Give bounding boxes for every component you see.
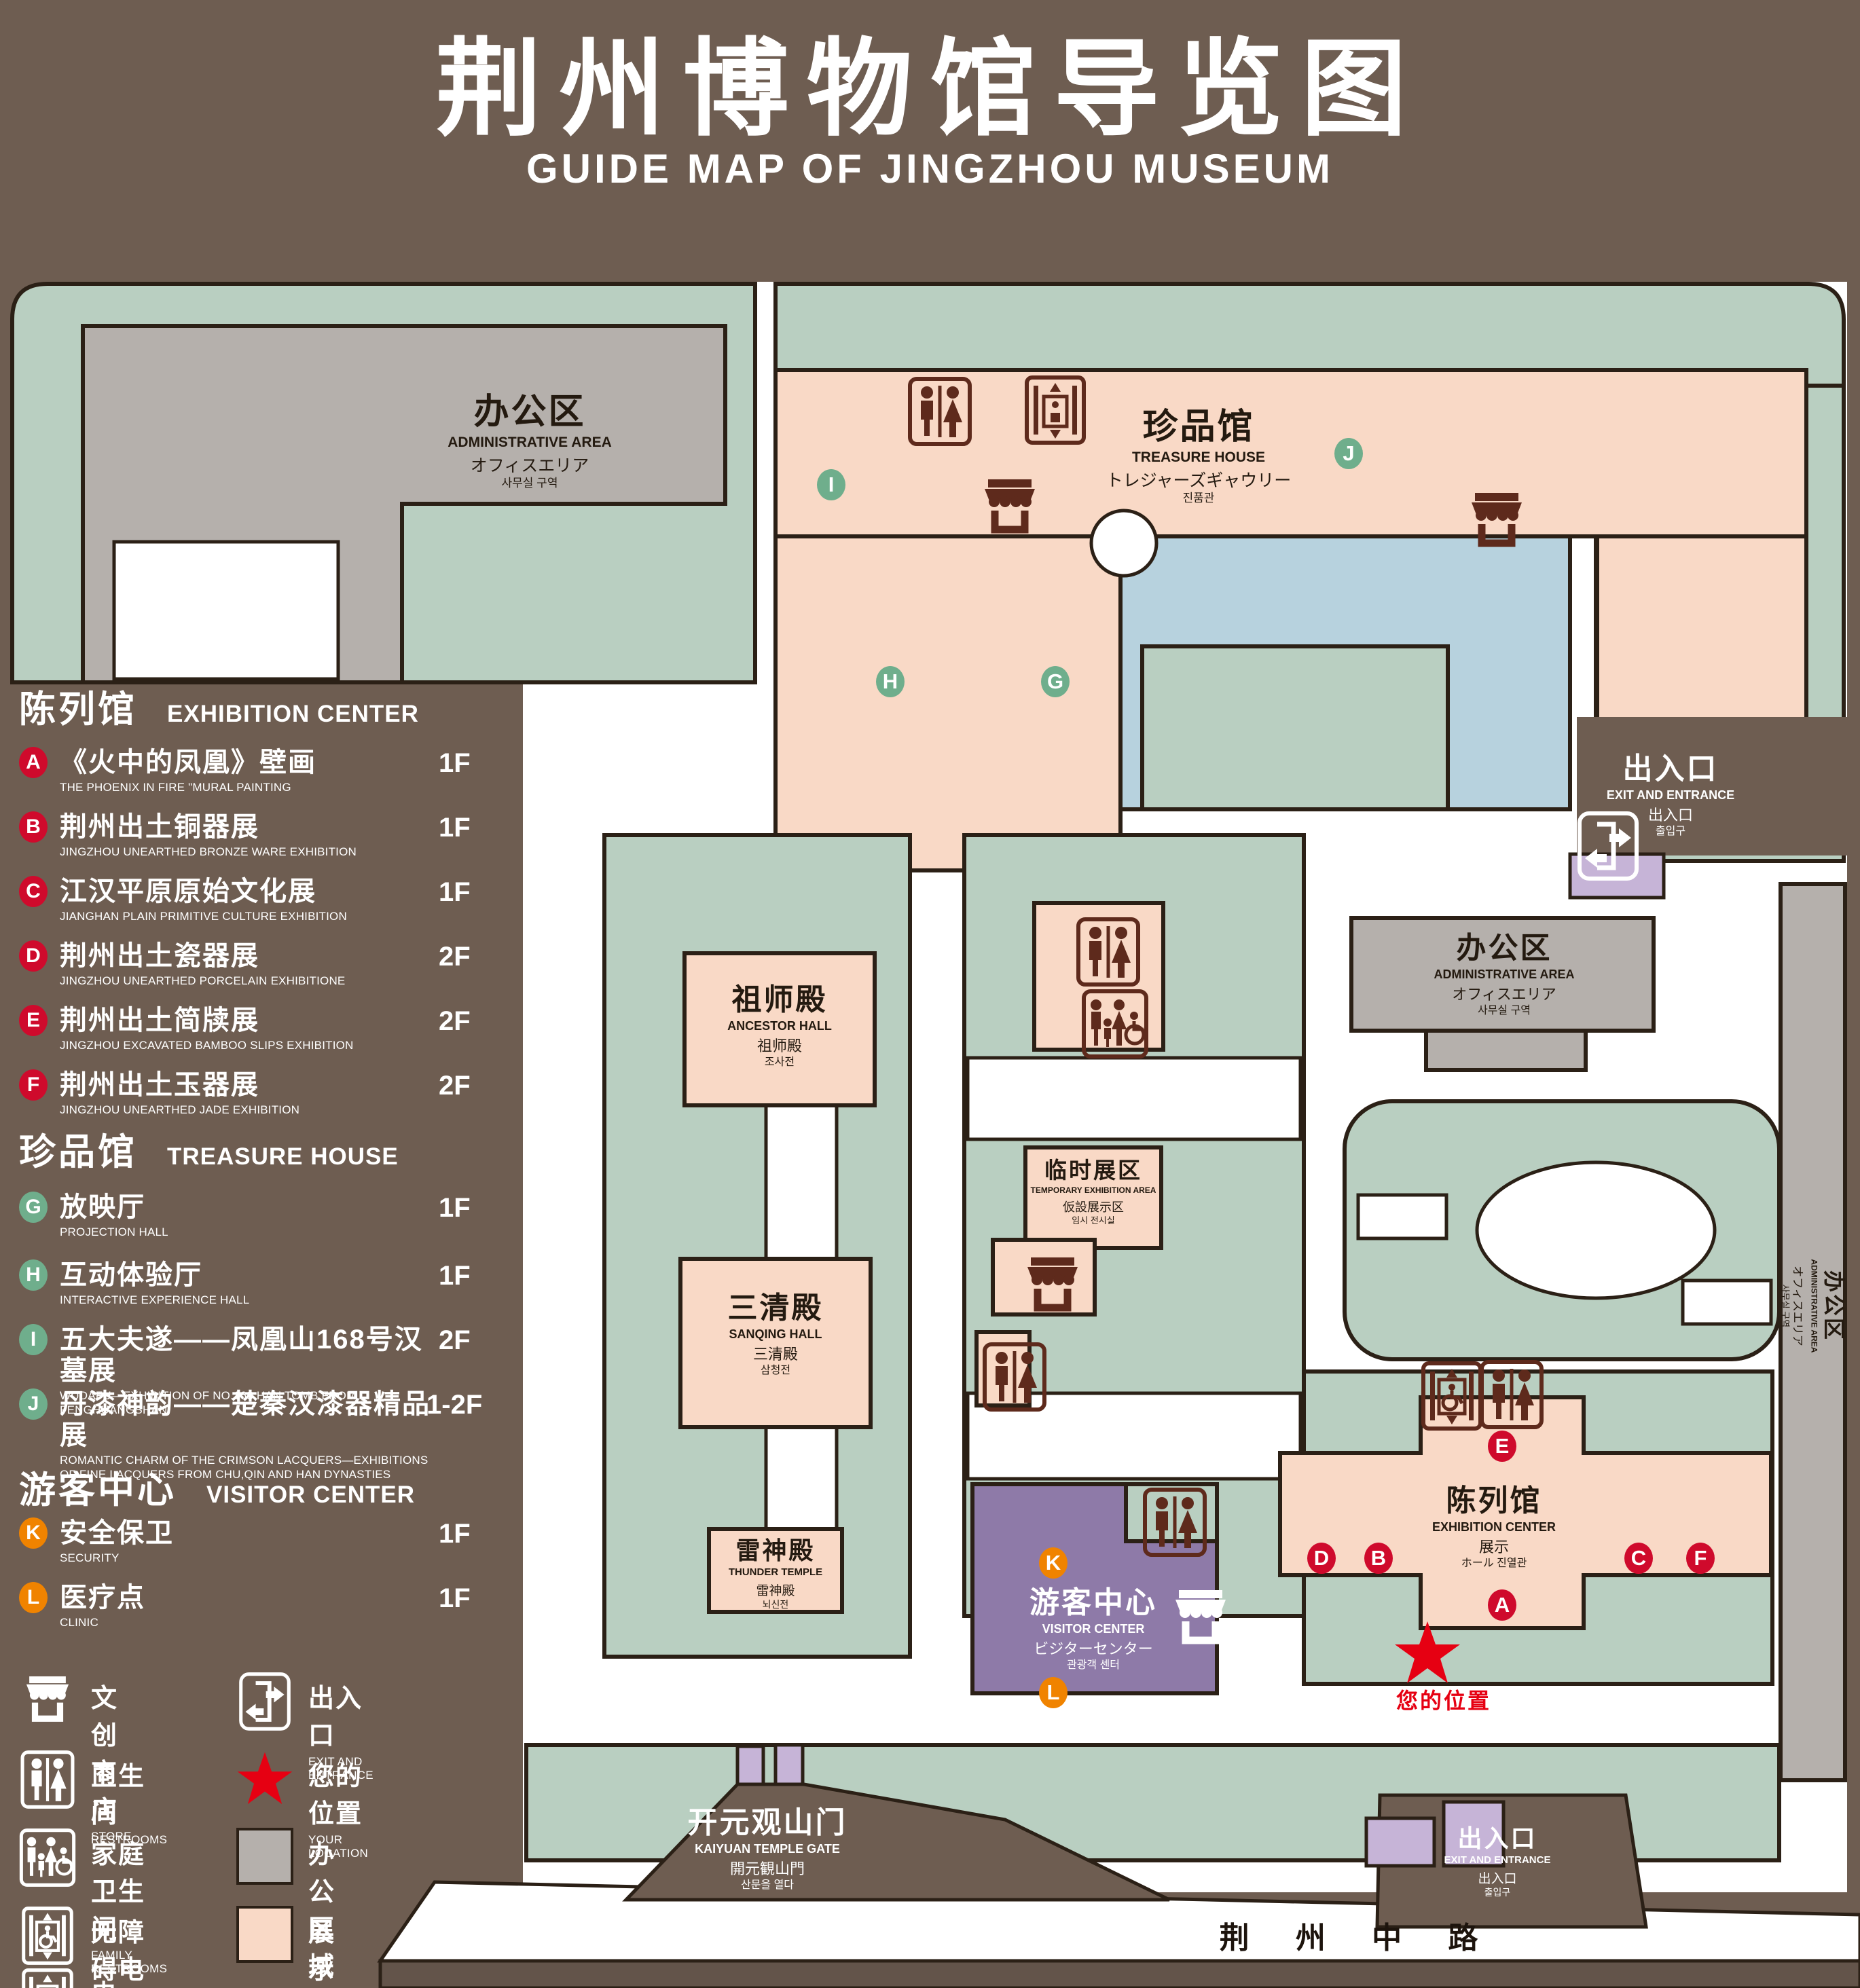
badge-L: L (19, 1582, 48, 1613)
badge-C: C (19, 876, 48, 907)
marker-K: K (1039, 1547, 1068, 1579)
marker-H: H (876, 666, 905, 697)
guide-map-poster: 荆州博物馆导览图 GUIDE MAP OF JINGZHOU MUSEUM 办公… (0, 0, 1860, 1988)
lake-spiral-path (1091, 511, 1156, 576)
section-exhibition-center: 陈列馆EXHIBITION CENTER (19, 679, 419, 733)
floor-H: 1F (439, 1261, 471, 1291)
label-sanqing-hall: 三清殿SANQING HALL 三清殿삼청전 (680, 1291, 871, 1377)
exit-icon (236, 1672, 293, 1731)
section-treasure-house: 珍品馆TREASURE HOUSE (19, 1122, 399, 1175)
label-admin-east: 办公区ADMINISTRATIVE AREA オフィスエリア사무실 구역 (1372, 932, 1637, 1017)
accessible-elevator-icon (1423, 1363, 1480, 1429)
label-visitor-center: 游客中心VISITOR CENTER ビジターセンター관광객 센터 (978, 1586, 1209, 1672)
marker-J: J (1334, 438, 1363, 469)
label-treasure-house: 珍品馆TREASURE HOUSE トレジャーズギャウリー진품관 (1049, 407, 1348, 504)
badge-D: D (19, 940, 48, 972)
garden-path-east (1683, 1281, 1771, 1324)
marker-C: C (1624, 1543, 1653, 1574)
label-ancestor-hall: 祖师殿ANCESTOR HALL 祖师殿조사전 (685, 983, 875, 1069)
road-south-strip (380, 1961, 1860, 1988)
corridor-sanqing-thunder (766, 1424, 837, 1530)
garden-path-west (1358, 1195, 1446, 1238)
corridor-ancestor-sanqing (766, 1101, 837, 1262)
badge-G: G (19, 1192, 48, 1223)
gate-kiosk-east (776, 1745, 803, 1786)
label-admin-strip: 办公区ADMINISTRATIVE AREA オフィスエリア사무실 구역 (1780, 1190, 1846, 1421)
path-center-1 (968, 1058, 1300, 1139)
your-location-star-icon (236, 1750, 293, 1809)
page-subtitle: GUIDE MAP OF JINGZHOU MUSEUM (0, 145, 1860, 192)
restroom-icon (19, 1750, 76, 1809)
lawn-lake-island (1142, 646, 1448, 809)
badge-K: K (19, 1517, 48, 1549)
elevator-icon (19, 1968, 76, 1988)
page-title: 荆州博物馆导览图 (0, 3, 1860, 156)
family-restroom-icon (19, 1828, 76, 1888)
road-name: 荆 州 中 路 (1141, 1913, 1575, 1957)
floor-D: 2F (439, 942, 471, 972)
garden-pond-path (1477, 1162, 1715, 1298)
marker-F: F (1686, 1543, 1715, 1574)
label-exit-east: 出入口EXIT AND ENTRANCE 出入口출입구 (1548, 752, 1793, 838)
floor-A: 1F (439, 748, 471, 779)
badge-B: B (19, 811, 48, 843)
floor-K: 1F (439, 1519, 471, 1549)
badge-J: J (19, 1388, 48, 1420)
admin-building-east-annex (1426, 1031, 1586, 1070)
store-icon (19, 1672, 76, 1731)
label-admin-northwest: 办公区ADMINISTRATIVE AREA オフィスエリア사무실 구역 (387, 392, 672, 490)
label-thunder-temple: 雷神殿THUNDER TEMPLE 雷神殿뇌신전 (709, 1537, 842, 1610)
floor-G: 1F (439, 1193, 471, 1223)
floor-B: 1F (439, 813, 471, 843)
floor-C: 1F (439, 877, 471, 908)
accessible-elevator-icon (19, 1906, 76, 1966)
badge-I: I (19, 1324, 48, 1355)
label-temporary-exhibition: 临时展区TEMPORARY EXHIBITION AREA 仮設展示区임시 전시… (1022, 1158, 1165, 1226)
marker-G: G (1041, 666, 1070, 697)
marker-E: E (1488, 1431, 1516, 1462)
floor-F: 2F (439, 1071, 471, 1101)
marker-B: B (1364, 1543, 1393, 1574)
your-location-label: 您的位置 (1383, 1684, 1505, 1715)
floor-L: 1F (439, 1583, 471, 1614)
marker-I: I (817, 469, 845, 500)
floor-J: 1-2F (426, 1390, 482, 1420)
display-area-swatch (236, 1906, 293, 1963)
floor-I: 2F (439, 1325, 471, 1356)
gate-kiosk-west (737, 1746, 763, 1786)
badge-F: F (19, 1069, 48, 1101)
marker-D: D (1307, 1543, 1336, 1574)
label-exhibition-center: 陈列馆EXHIBITION CENTER 展示ホール 진열관 (1399, 1484, 1589, 1570)
badge-A: A (19, 747, 48, 778)
office-area-swatch (236, 1828, 293, 1885)
floor-E: 2F (439, 1006, 471, 1037)
marker-L: L (1039, 1677, 1068, 1708)
badge-E: E (19, 1005, 48, 1036)
label-kaiyuan-gate: 开元观山门KAIYUAN TEMPLE GATE 開元観山門산문을 열다 (638, 1806, 896, 1892)
section-visitor-center: 游客中心VISITOR CENTER (19, 1460, 415, 1513)
treasure-house-west-wing (776, 536, 1120, 870)
marker-A: A (1488, 1589, 1516, 1621)
badge-H: H (19, 1259, 48, 1291)
admin-nw-courtyard (114, 542, 338, 679)
label-exit-south: 出入口EXIT AND ENTRANCE 出入口출입구 (1385, 1825, 1609, 1898)
